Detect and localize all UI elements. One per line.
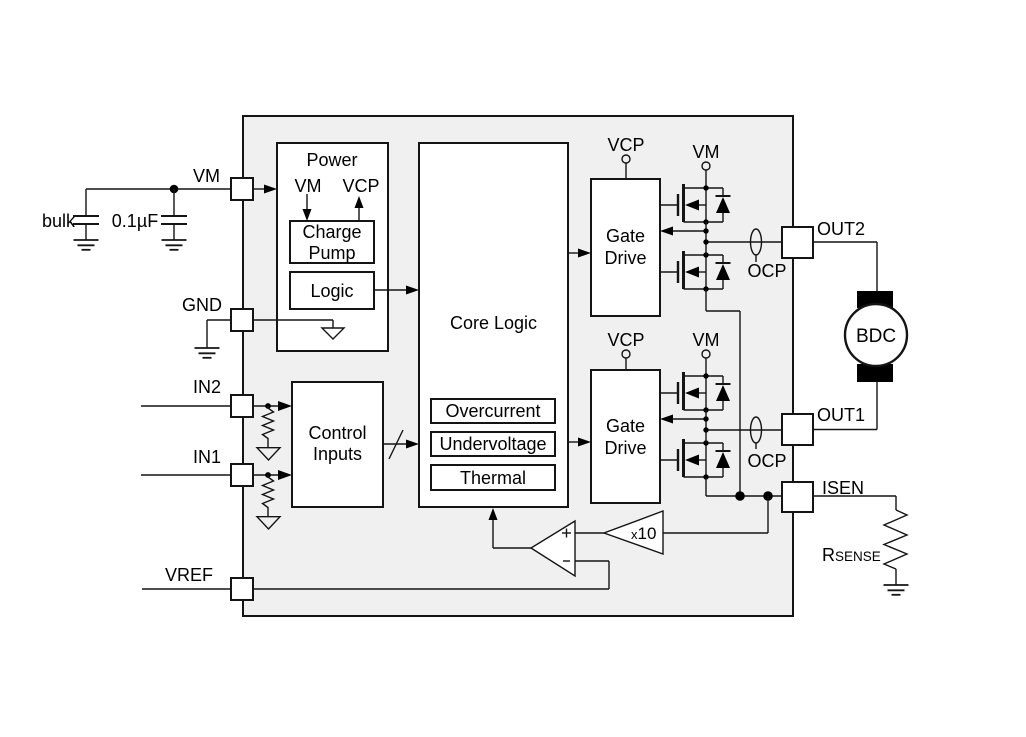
svg-text:Control: Control <box>308 423 366 443</box>
svg-text:Overcurrent: Overcurrent <box>445 401 540 421</box>
svg-text:VCP: VCP <box>607 135 644 155</box>
svg-text:OCP: OCP <box>747 261 786 281</box>
svg-text:VM: VM <box>295 176 322 196</box>
svg-text:VM: VM <box>693 142 720 162</box>
svg-text:Drive: Drive <box>604 248 646 268</box>
svg-text:RSENSE: RSENSE <box>822 545 881 565</box>
svg-text:VM: VM <box>193 166 220 186</box>
svg-text:VM: VM <box>693 330 720 350</box>
svg-text:Inputs: Inputs <box>313 444 362 464</box>
svg-text:VCP: VCP <box>607 330 644 350</box>
svg-text:Power: Power <box>306 150 357 170</box>
svg-text:Undervoltage: Undervoltage <box>439 434 546 454</box>
svg-text:Pump: Pump <box>308 243 355 263</box>
svg-text:Drive: Drive <box>604 438 646 458</box>
svg-text:x10: x10 <box>631 524 656 543</box>
svg-text:IN2: IN2 <box>193 377 221 397</box>
svg-text:IN1: IN1 <box>193 447 221 467</box>
svg-text:OUT2: OUT2 <box>817 219 865 239</box>
svg-text:OCP: OCP <box>747 451 786 471</box>
svg-text:ISEN: ISEN <box>822 478 864 498</box>
svg-text:bulk: bulk <box>42 211 76 231</box>
svg-text:Core Logic: Core Logic <box>450 313 537 333</box>
svg-text:0.1µF: 0.1µF <box>112 211 158 231</box>
svg-text:VREF: VREF <box>165 565 213 585</box>
svg-text:BDC: BDC <box>856 326 896 347</box>
svg-text:Gate: Gate <box>606 416 645 436</box>
svg-text:GND: GND <box>182 295 222 315</box>
svg-text:Charge: Charge <box>302 222 361 242</box>
svg-text:Gate: Gate <box>606 226 645 246</box>
svg-text:Logic: Logic <box>310 281 353 301</box>
svg-text:VCP: VCP <box>342 176 379 196</box>
svg-text:OUT1: OUT1 <box>817 405 865 425</box>
svg-text:Thermal: Thermal <box>460 468 526 488</box>
